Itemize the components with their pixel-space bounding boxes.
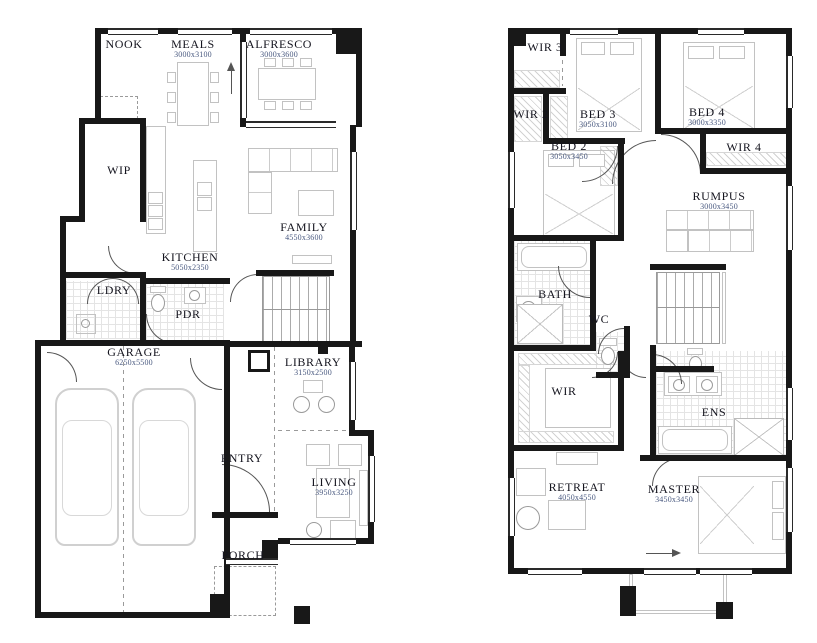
wall <box>140 278 146 346</box>
toilet-icon <box>687 348 703 355</box>
room-label-bed3: BED 33050x3100 <box>579 108 617 130</box>
wall <box>514 235 624 241</box>
window <box>528 568 582 575</box>
room-label-porch: PORCH <box>221 549 264 562</box>
window <box>290 538 356 545</box>
room-name: WIP <box>107 163 131 177</box>
tv-unit-icon <box>359 470 368 526</box>
room-name: WIR <box>551 384 576 398</box>
room-name: PORCH <box>221 548 264 562</box>
tv-unit-icon <box>292 255 332 264</box>
window <box>700 568 752 575</box>
room-label-ldry: LDRY <box>97 284 131 297</box>
post-icon <box>716 602 733 619</box>
window <box>246 121 336 128</box>
pillow-icon <box>719 46 745 59</box>
wardrobe-hatch-icon <box>550 96 568 142</box>
window <box>108 28 158 35</box>
wardrobe-hatch-icon <box>518 431 614 443</box>
wall <box>140 278 230 284</box>
room-name: FAMILY <box>280 220 328 234</box>
room-label-wir4: WIR 4 <box>726 141 761 154</box>
room-dim: 3000x3350 <box>688 119 726 128</box>
sofa-icon <box>688 230 754 252</box>
room-label-kitchen: KITCHEN5050x2350 <box>162 251 219 273</box>
room-dim: 3450x3450 <box>648 496 700 505</box>
sink-icon <box>197 197 212 211</box>
wall <box>140 118 146 222</box>
pillow-icon <box>610 42 634 55</box>
window <box>508 478 515 536</box>
wall <box>640 455 792 461</box>
wall <box>95 28 101 124</box>
wall-pier <box>336 28 362 54</box>
door-swing-icon <box>190 358 222 390</box>
car-icon <box>132 388 196 546</box>
stairs-landing-line <box>656 307 720 308</box>
room-name: WIR 4 <box>726 140 761 154</box>
toilet-icon <box>151 294 165 312</box>
room-name: ALFRESCO <box>246 37 312 51</box>
wall <box>60 216 66 346</box>
wall <box>224 346 230 618</box>
room-label-master: MASTER3450x3450 <box>648 483 700 505</box>
room-dim: 6250x5500 <box>107 359 161 368</box>
wall <box>79 118 85 222</box>
sofa-icon <box>666 210 754 230</box>
room-name: BED 2 <box>551 139 587 153</box>
door-swing-icon <box>47 352 77 382</box>
room-label-wir: WIR <box>551 385 576 398</box>
room-label-meals: MEALS3000x3100 <box>171 38 215 60</box>
wall <box>624 326 630 378</box>
window <box>250 28 332 35</box>
library-chair-icon <box>318 396 335 413</box>
armchair-icon <box>306 444 330 466</box>
room-name: ENTRY <box>221 451 263 465</box>
chair-icon <box>167 72 176 83</box>
room-dim: 4550x3600 <box>280 234 328 243</box>
room-name: BED 4 <box>689 105 725 119</box>
wall <box>35 612 230 618</box>
room-label-rumpus: RUMPUS3000x3450 <box>693 190 746 212</box>
chair-icon <box>167 112 176 123</box>
room-name: MEALS <box>171 37 215 51</box>
basin-icon <box>81 319 90 328</box>
room-name: BED 3 <box>580 107 616 121</box>
room-dim: 3000x3600 <box>246 51 312 60</box>
room-name: PDR <box>175 307 200 321</box>
closet-icon <box>248 350 270 372</box>
room-name: WIR 2 <box>513 107 548 121</box>
wall <box>596 372 630 378</box>
room-label-bath: BATH <box>538 288 572 301</box>
up-arrow-icon <box>231 70 232 94</box>
shower-icon <box>734 418 784 456</box>
room-name: WC <box>589 312 610 326</box>
chair-icon <box>210 72 219 83</box>
wall-pier <box>318 346 328 354</box>
chair-icon <box>210 92 219 103</box>
car-icon <box>55 388 119 546</box>
room-label-garage: GARAGE6250x5500 <box>107 346 161 368</box>
window <box>350 152 357 230</box>
wall <box>508 28 792 34</box>
wardrobe-hatch-icon <box>514 70 560 88</box>
wall <box>212 512 278 518</box>
room-dim: 3000x3450 <box>693 203 746 212</box>
direction-arrow-icon <box>646 553 672 554</box>
chair-icon <box>282 101 294 110</box>
window <box>698 28 744 35</box>
room-name: BATH <box>538 287 572 301</box>
room-name: KITCHEN <box>162 250 219 264</box>
room-label-wir2: WIR 2 <box>513 108 548 121</box>
room-label-nook: NOOK <box>105 38 142 51</box>
basin-icon <box>701 379 713 391</box>
outdoor-table-icon <box>258 68 316 100</box>
wall <box>514 445 624 451</box>
bathtub-icon <box>662 429 728 451</box>
balcony-rail-icon <box>629 610 727 614</box>
room-name: LIBRARY <box>285 355 341 369</box>
chair-icon <box>210 112 219 123</box>
room-label-library: LIBRARY3150x2500 <box>285 356 341 378</box>
room-label-retreat: RETREAT4050x4550 <box>549 481 606 503</box>
window <box>786 388 793 440</box>
window <box>786 468 793 532</box>
window <box>178 28 232 35</box>
window <box>508 152 515 208</box>
coffee-table-icon <box>548 500 586 530</box>
sink-icon <box>197 182 212 196</box>
room-name: LDRY <box>97 283 131 297</box>
bed-fold-lines <box>700 486 754 544</box>
window <box>644 568 696 575</box>
room-name: RUMPUS <box>693 189 746 203</box>
room-name: WIR 3 <box>527 40 562 54</box>
pillow-icon <box>772 481 784 509</box>
chair-icon <box>167 92 176 103</box>
dashed-line <box>562 52 563 86</box>
room-dim: 5050x2350 <box>162 264 219 273</box>
window <box>786 186 793 250</box>
wall <box>256 270 334 276</box>
wall <box>60 272 146 278</box>
wall <box>618 144 624 241</box>
wall <box>655 34 661 134</box>
window <box>349 362 356 420</box>
chair-icon <box>300 101 312 110</box>
up-arrow-icon <box>227 62 235 71</box>
stairs-landing-line <box>262 309 330 310</box>
sofa-icon <box>248 148 338 172</box>
wall-pier <box>508 28 526 46</box>
post-icon <box>210 594 224 618</box>
room-label-wir3: WIR 3 <box>527 41 562 54</box>
wall <box>700 168 792 174</box>
room-label-alfresco: ALFRESCO3000x3600 <box>246 38 312 60</box>
shower-icon <box>517 304 563 344</box>
room-name: NOOK <box>105 37 142 51</box>
room-label-family: FAMILY4550x3600 <box>280 221 328 243</box>
room-label-ens: ENS <box>702 406 726 419</box>
pillow-icon <box>688 46 714 59</box>
room-dim: 3950x3250 <box>312 489 357 498</box>
room-dim: 3050x3450 <box>550 153 588 162</box>
wall <box>514 345 596 351</box>
post-icon <box>294 606 310 624</box>
room-dim: 3150x2500 <box>285 369 341 378</box>
room-dim: 3050x3100 <box>579 121 617 130</box>
void-rail-icon <box>722 272 726 344</box>
room-name: GARAGE <box>107 345 161 359</box>
wall <box>650 264 726 270</box>
basin-icon <box>189 290 200 301</box>
dining-table-icon <box>177 62 209 126</box>
dashed-line <box>274 347 275 512</box>
cooktop-icon <box>148 218 163 230</box>
room-name: ENS <box>702 405 726 419</box>
direction-arrow-icon <box>672 549 681 557</box>
stairs-icon <box>656 272 720 344</box>
side-table-icon <box>306 522 322 538</box>
sofa-icon <box>666 230 688 252</box>
floor-plan: NOOK MEALS3000x3100 ALFRESCO3000x3600 WI… <box>0 0 817 643</box>
door-swing-icon <box>230 274 258 302</box>
cooktop-icon <box>148 192 163 204</box>
library-chair-icon <box>293 396 310 413</box>
bathtub-icon <box>521 246 587 268</box>
toilet-icon <box>150 286 166 293</box>
coffee-table-icon <box>298 190 334 216</box>
side-table-icon <box>303 380 323 393</box>
wall <box>79 118 146 124</box>
pillow-icon <box>581 42 605 55</box>
window <box>368 456 375 522</box>
room-label-wip: WIP <box>107 164 131 177</box>
wall <box>618 351 624 451</box>
room-label-bed2: BED 23050x3450 <box>550 140 588 162</box>
window <box>570 28 618 35</box>
post-icon <box>620 586 636 616</box>
room-name: RETREAT <box>549 480 606 494</box>
window <box>786 56 793 108</box>
pillow-icon <box>772 512 784 540</box>
dashed-line <box>123 346 124 612</box>
room-label-living: LIVING3950x3250 <box>312 476 357 498</box>
wall <box>656 366 714 372</box>
cooktop-icon <box>148 205 163 217</box>
ottoman-icon <box>556 452 598 465</box>
wall <box>514 88 566 94</box>
room-label-pdr: PDR <box>175 308 200 321</box>
armchair-icon <box>338 444 362 466</box>
chair-icon <box>264 101 276 110</box>
room-label-wc: WC <box>589 313 610 326</box>
wall <box>230 341 362 347</box>
room-label-bed4: BED 43000x3350 <box>688 106 726 128</box>
wall <box>655 128 792 134</box>
door-swing-icon <box>661 134 701 174</box>
room-label-entry: ENTRY <box>221 452 263 465</box>
room-dim: 3000x3100 <box>171 51 215 60</box>
wall <box>650 345 656 461</box>
wall <box>590 241 596 351</box>
armchair-icon <box>516 468 546 496</box>
room-name: LIVING <box>312 475 357 489</box>
wall <box>35 340 41 618</box>
room-name: MASTER <box>648 482 700 496</box>
door-swing-icon <box>108 246 136 274</box>
bed-fold-lines <box>545 194 613 234</box>
armchair-icon <box>516 506 540 530</box>
room-dim: 4050x4550 <box>549 494 606 503</box>
sofa-icon <box>248 172 272 214</box>
